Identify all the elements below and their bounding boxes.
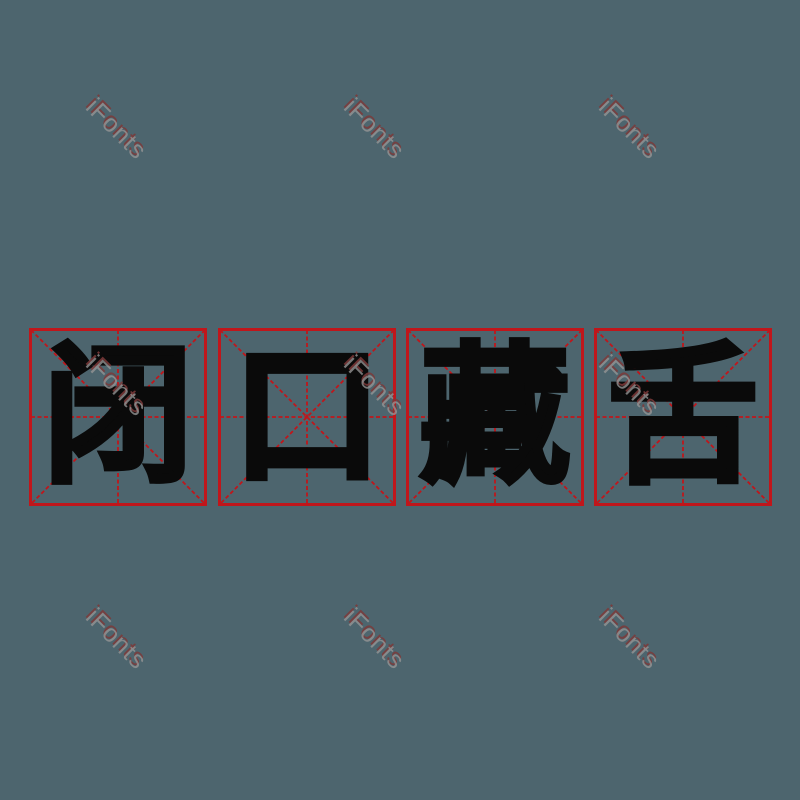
mizige-box: 闭 [29, 328, 207, 506]
mizige-box: 口 [218, 328, 396, 506]
ifonts-watermark: iFonts [337, 93, 410, 166]
mizige-box: 舌 [594, 328, 772, 506]
idiom-character: 舌 [594, 328, 772, 506]
mizige-box: 藏 [406, 328, 584, 506]
ifonts-watermark: iFonts [337, 603, 410, 676]
ifonts-watermark: iFonts [592, 603, 665, 676]
ifonts-watermark: iFonts [79, 603, 152, 676]
ifonts-watermark: iFonts [592, 93, 665, 166]
idiom-character: 口 [218, 328, 396, 506]
idiom-character: 藏 [406, 328, 584, 506]
ifonts-watermark: iFonts [79, 93, 152, 166]
font-preview-canvas: iFonts iFonts iFonts iFonts iFonts iFont… [0, 0, 800, 800]
idiom-character: 闭 [29, 328, 207, 506]
